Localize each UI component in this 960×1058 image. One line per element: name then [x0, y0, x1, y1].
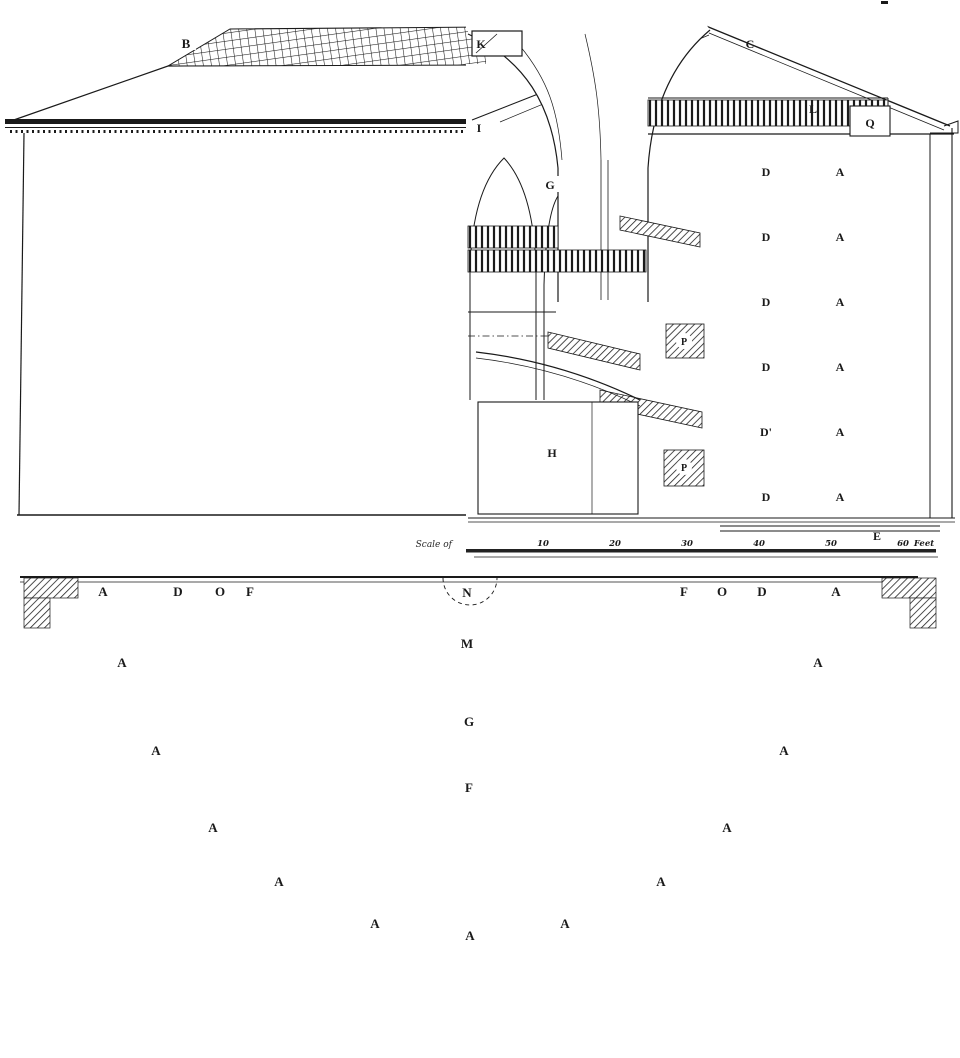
elevation-view: B: [5, 27, 486, 515]
section-label-c: C: [746, 37, 755, 51]
scale-tick-30: 30: [681, 539, 693, 549]
floor-door-label: D: [762, 490, 771, 504]
stair-label-p: P: [681, 463, 687, 474]
cell-label: A: [656, 874, 666, 889]
floor-cell-label: A: [836, 360, 845, 374]
gallery-balustrade: [468, 226, 558, 248]
floor-cell-label: A: [836, 230, 845, 244]
scale-tick-60: 60: [897, 539, 909, 549]
scale-tick-50: 50: [825, 539, 837, 549]
floor-cell-label: A: [836, 425, 845, 439]
section-view: K C I L Q G H E P P D A D A D A D A D' A…: [416, 18, 958, 564]
floor-door-label: D: [762, 360, 771, 374]
floor-door-label: D: [762, 165, 771, 179]
scale-unit: Feet: [913, 539, 934, 549]
floor-cell-label: A: [836, 490, 845, 504]
section-label-l: L: [809, 102, 817, 116]
roof-label: B: [182, 36, 191, 51]
plan-label-n: N: [462, 585, 472, 600]
ring-label-a-right: A: [831, 584, 841, 599]
section-label-g: G: [545, 178, 554, 192]
cell-label: A: [370, 916, 380, 931]
section-label-i: I: [477, 121, 482, 135]
ring-label-a-left: A: [98, 584, 108, 599]
scale-tick-10: 10: [537, 539, 549, 549]
engraving-canvas: B: [0, 0, 960, 1058]
end-wall-pier: [910, 598, 936, 628]
end-wall-block: [24, 578, 78, 598]
scale-tick-40: 40: [753, 539, 765, 549]
plate-ink-speck: [881, 1, 888, 4]
section-label-e: E: [873, 529, 881, 543]
scale-tick-20: 20: [608, 539, 621, 549]
cell-label: A: [465, 928, 475, 943]
gallery-balustrade: [468, 250, 646, 272]
scale-caption: Scale of: [416, 540, 454, 550]
section-label-q: Q: [865, 116, 874, 130]
panopticon-plate: B: [0, 0, 960, 1058]
floor-cell-label: A: [836, 295, 845, 309]
cornice-band: [5, 119, 468, 124]
ring-label-o-right: O: [717, 584, 727, 599]
cell-label: A: [722, 820, 732, 835]
plan-label-f: F: [465, 780, 473, 795]
floor-door-label: D: [762, 230, 771, 244]
roof-lattice: [168, 27, 486, 66]
scale-bar: [466, 549, 936, 553]
end-wall-pier: [24, 598, 50, 628]
section-label-h: H: [547, 446, 557, 460]
cell-label: A: [779, 743, 789, 758]
stair-label-p: P: [681, 337, 687, 348]
section-label-k: K: [476, 37, 486, 51]
end-wall-block: [882, 578, 936, 598]
cell-label: A: [151, 743, 161, 758]
half-plan-view: N M G F A D O F F O D A A A A A A A A A …: [20, 577, 936, 943]
ring-label-f-left: F: [246, 584, 254, 599]
cell-label: A: [208, 820, 218, 835]
plan-label-g: G: [464, 714, 474, 729]
cell-label: A: [117, 655, 127, 670]
floor-door-label: D: [762, 295, 771, 309]
facade-left-edge: [19, 133, 24, 515]
plan-label-m: M: [461, 636, 473, 651]
cell-label: A: [560, 916, 570, 931]
floor-cell-label: A: [836, 165, 845, 179]
floor-door-label: D': [760, 425, 772, 439]
ring-label-o-left: O: [215, 584, 225, 599]
hall-room: [478, 402, 638, 514]
ring-label-f-right: F: [680, 584, 688, 599]
ring-label-d-right: D: [757, 584, 766, 599]
cell-label: A: [813, 655, 823, 670]
roof-slope: [8, 64, 486, 122]
cell-label: A: [274, 874, 284, 889]
ring-label-d-left: D: [173, 584, 182, 599]
